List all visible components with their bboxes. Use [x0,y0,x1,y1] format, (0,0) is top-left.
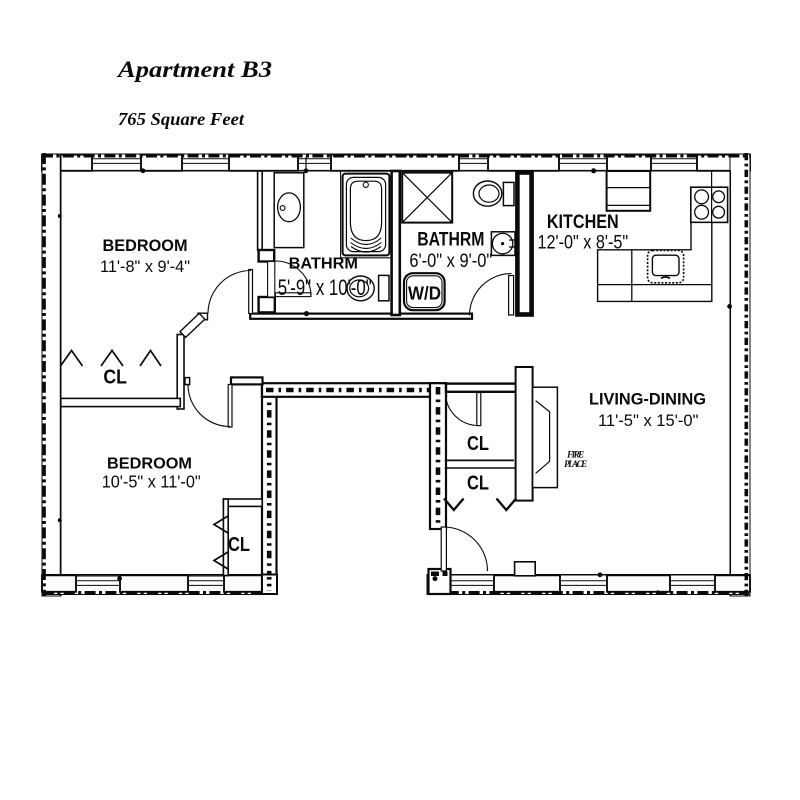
svg-text:11'-8" x 9'-4": 11'-8" x 9'-4" [100,257,190,276]
svg-text:CL: CL [467,473,489,495]
svg-text:CL: CL [103,367,127,389]
svg-text:CL: CL [467,433,489,455]
svg-text:LIVING-DINING: LIVING-DINING [589,390,706,409]
svg-text:BATHRM: BATHRM [417,229,484,250]
svg-text:W/D: W/D [408,284,441,304]
svg-text:KITCHEN: KITCHEN [547,212,619,233]
svg-text:Apartment B3: Apartment B3 [116,57,272,82]
svg-text:CL: CL [228,534,250,556]
svg-text:BEDROOM: BEDROOM [107,455,192,472]
svg-text:FIRE: FIRE [566,450,584,460]
svg-text:5'-9" x 10'-0": 5'-9" x 10'-0" [278,275,372,300]
svg-text:6'-0" x 9'-0": 6'-0" x 9'-0" [409,251,492,272]
svg-text:PLACE: PLACE [564,459,587,469]
svg-text:765 Square Feet: 765 Square Feet [118,109,245,129]
svg-text:12'-0" x 8'-5": 12'-0" x 8'-5" [538,232,629,253]
svg-text:BATHRM: BATHRM [289,256,358,273]
svg-text:10'-5" x 11'-0": 10'-5" x 11'-0" [102,472,201,492]
svg-text:BEDROOM: BEDROOM [103,236,188,255]
svg-text:11'-5" x 15'-0": 11'-5" x 15'-0" [598,411,699,430]
